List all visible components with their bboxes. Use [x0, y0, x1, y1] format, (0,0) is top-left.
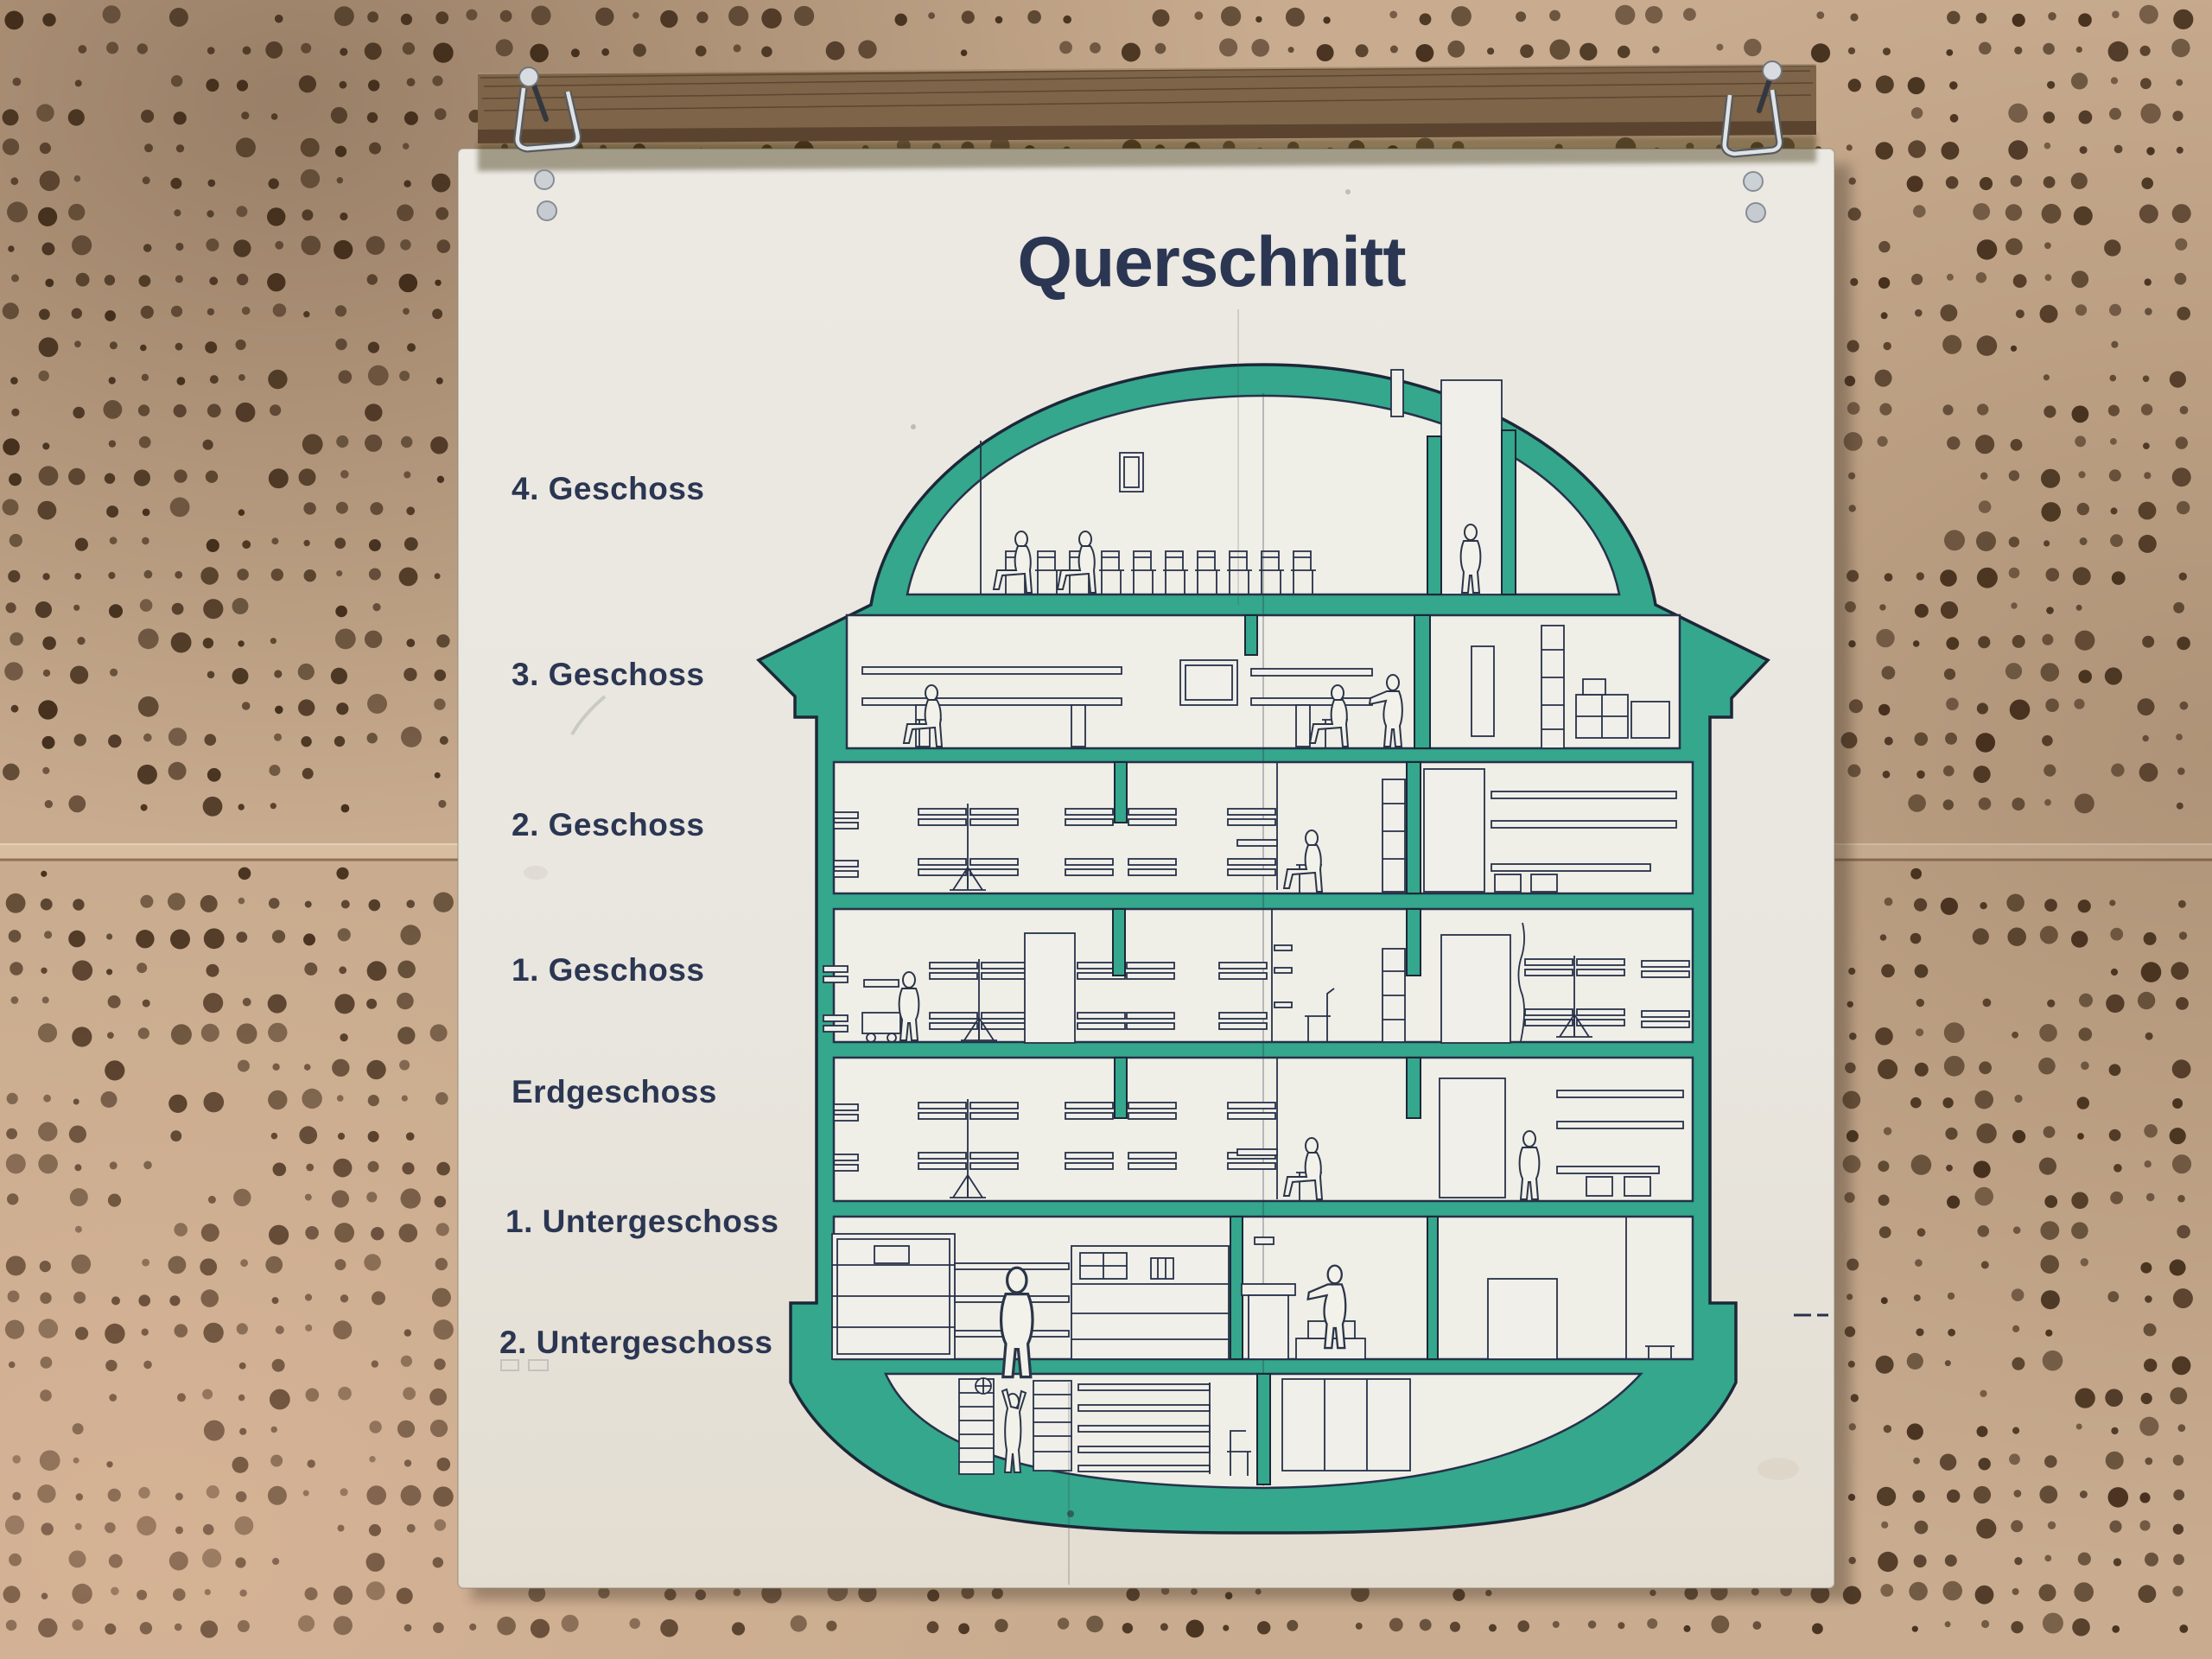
roof-slot — [1391, 370, 1403, 416]
shelf-tower-icon — [1382, 949, 1405, 1042]
storage-cabinet-icon — [832, 1234, 955, 1359]
floor-label-2-geschoss: 2. Geschoss — [512, 807, 705, 842]
ladder-rack-icon — [959, 1379, 994, 1474]
cabinet-row-icon — [1282, 1379, 1410, 1471]
window-icon — [1120, 453, 1143, 492]
floor-label-3-geschoss: 3. Geschoss — [512, 657, 705, 692]
box-icon — [1531, 874, 1557, 892]
door-icon — [1488, 1279, 1557, 1359]
door-icon — [1440, 1078, 1505, 1198]
counter-icon — [1242, 1284, 1295, 1359]
photo-of-wall-chart: Querschnitt 4. Geschoss 3. Geschoss 2. G… — [0, 0, 2212, 1659]
nail-head-icon — [519, 67, 538, 86]
box-icon — [1586, 1177, 1612, 1196]
pin-icon — [537, 201, 556, 220]
pin-icon — [1744, 172, 1763, 191]
door-icon — [1441, 935, 1510, 1043]
floor-label-1-geschoss: 1. Geschoss — [512, 952, 705, 988]
whiteboard-icon — [1180, 660, 1237, 705]
box-shelf-icon — [1071, 1246, 1229, 1359]
wheel-icon — [976, 1378, 991, 1394]
wood-rail — [478, 64, 1816, 171]
floor-label-4-geschoss: 4. Geschoss — [512, 471, 705, 506]
cabinet-icon — [1025, 933, 1075, 1043]
pin-icon — [535, 170, 554, 189]
cabinet-icon — [1471, 646, 1494, 736]
pin-icon — [1746, 203, 1765, 222]
door-icon — [1424, 769, 1484, 892]
box-icon — [1624, 1177, 1650, 1196]
shelf-tower-icon — [1382, 779, 1405, 892]
nail-head-icon — [1763, 61, 1782, 80]
floor-label-1-untergeschoss: 1. Untergeschoss — [505, 1204, 779, 1239]
floor-label-erdgeschoss: Erdgeschoss — [512, 1074, 717, 1109]
box-icon — [1495, 874, 1521, 892]
ladder-rack-icon — [1033, 1381, 1071, 1471]
floor-label-2-untergeschoss: 2. Untergeschoss — [499, 1325, 772, 1360]
shelf-rack-icon — [1541, 626, 1564, 748]
page-title: Querschnitt — [1017, 223, 1406, 302]
cabinet-icon — [1631, 702, 1669, 738]
